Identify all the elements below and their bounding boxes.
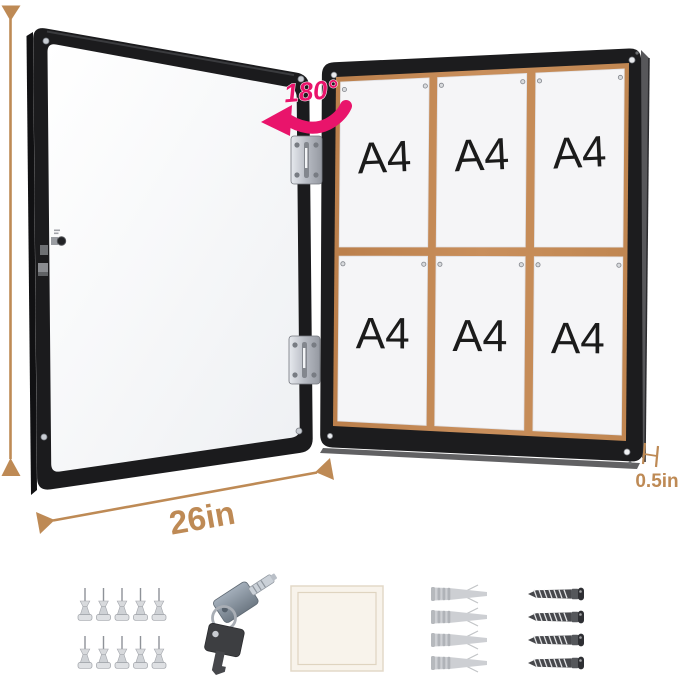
- pushpin-icon: [115, 636, 129, 668]
- a4-paper: A4: [339, 78, 429, 247]
- pushpin-icon: [78, 636, 92, 668]
- a4-label: A4: [551, 127, 607, 178]
- product-dimension-diagram: 28in A4A4A4A4A4A4: [0, 0, 679, 679]
- a4-paper: A4: [533, 257, 623, 436]
- wall-anchor-icon: [431, 654, 487, 672]
- screw-icon: [528, 657, 584, 670]
- pushpin-icon: [134, 588, 148, 620]
- paper-pin-icon: [521, 80, 525, 84]
- screw-icon: [528, 588, 584, 601]
- corner-screw-icon: [327, 433, 332, 438]
- pushpin-icon: [134, 636, 148, 668]
- screws-group: [528, 588, 584, 670]
- a4-label: A4: [356, 132, 412, 183]
- corner-screw-icon: [624, 449, 630, 455]
- wall-anchor-icon: [431, 608, 487, 626]
- wall-anchor-icon: [431, 585, 487, 603]
- screw-icon: [528, 634, 584, 647]
- hinge-icon: [289, 336, 320, 384]
- a4-label: A4: [452, 310, 507, 361]
- door-clear-panel: [47, 44, 299, 471]
- keys-icon: [199, 565, 283, 679]
- paper-pin-icon: [422, 262, 426, 266]
- paper-pin-icon: [341, 262, 345, 266]
- corner-screw-icon: [296, 428, 302, 434]
- paper-pin-icon: [618, 75, 622, 79]
- rotation-label: 180°: [283, 74, 340, 109]
- a4-paper: A4: [435, 256, 526, 430]
- arrowhead-right-icon: [315, 458, 334, 480]
- notice-board: A4A4A4A4A4A4: [320, 48, 649, 469]
- paper-pin-icon: [439, 83, 443, 87]
- width-label: 26in: [166, 494, 237, 542]
- corner-screw-icon: [41, 434, 47, 440]
- depth-connector: [644, 454, 657, 456]
- wall-anchor-icon: [431, 631, 487, 649]
- a4-paper: A4: [534, 69, 624, 247]
- paper-pin-icon: [423, 84, 427, 88]
- paper-pin-icon: [342, 87, 346, 91]
- pushpin-icon: [115, 588, 129, 620]
- a4-label: A4: [356, 309, 410, 358]
- pushpin-icon: [97, 636, 111, 668]
- pushpin-icon: [152, 636, 166, 668]
- corner-screw-icon: [43, 38, 49, 44]
- wall-anchors-group: [431, 585, 487, 672]
- a4-label: A4: [551, 314, 605, 363]
- arrowhead-down-icon: [2, 458, 21, 476]
- arrowhead-left-icon: [36, 512, 55, 534]
- pushpin-icon: [152, 588, 166, 620]
- a4-paper: A4: [338, 256, 428, 425]
- screw-icon: [528, 611, 584, 624]
- note-pad-icon: [291, 586, 383, 671]
- pushpin-icon: [78, 588, 92, 620]
- paper-pin-icon: [536, 263, 540, 267]
- a4-label: A4: [453, 128, 510, 182]
- paper-pin-icon: [519, 263, 523, 267]
- depth-label: 0.5in: [635, 471, 678, 492]
- paper-pin-icon: [438, 262, 442, 266]
- cabinet-door: [27, 28, 313, 495]
- corner-pin-icon: [635, 51, 638, 54]
- hinge-icon: [291, 136, 322, 184]
- pushpins-group: [78, 588, 166, 668]
- corner-screw-icon: [629, 57, 635, 63]
- corner-pin-icon: [628, 461, 631, 464]
- a4-paper: A4: [436, 73, 527, 247]
- paper-pin-icon: [617, 263, 621, 267]
- paper-pin-icon: [537, 79, 541, 83]
- accessories-row: [78, 565, 584, 679]
- arrowhead-up-icon: [2, 6, 21, 22]
- pushpin-icon: [97, 588, 111, 620]
